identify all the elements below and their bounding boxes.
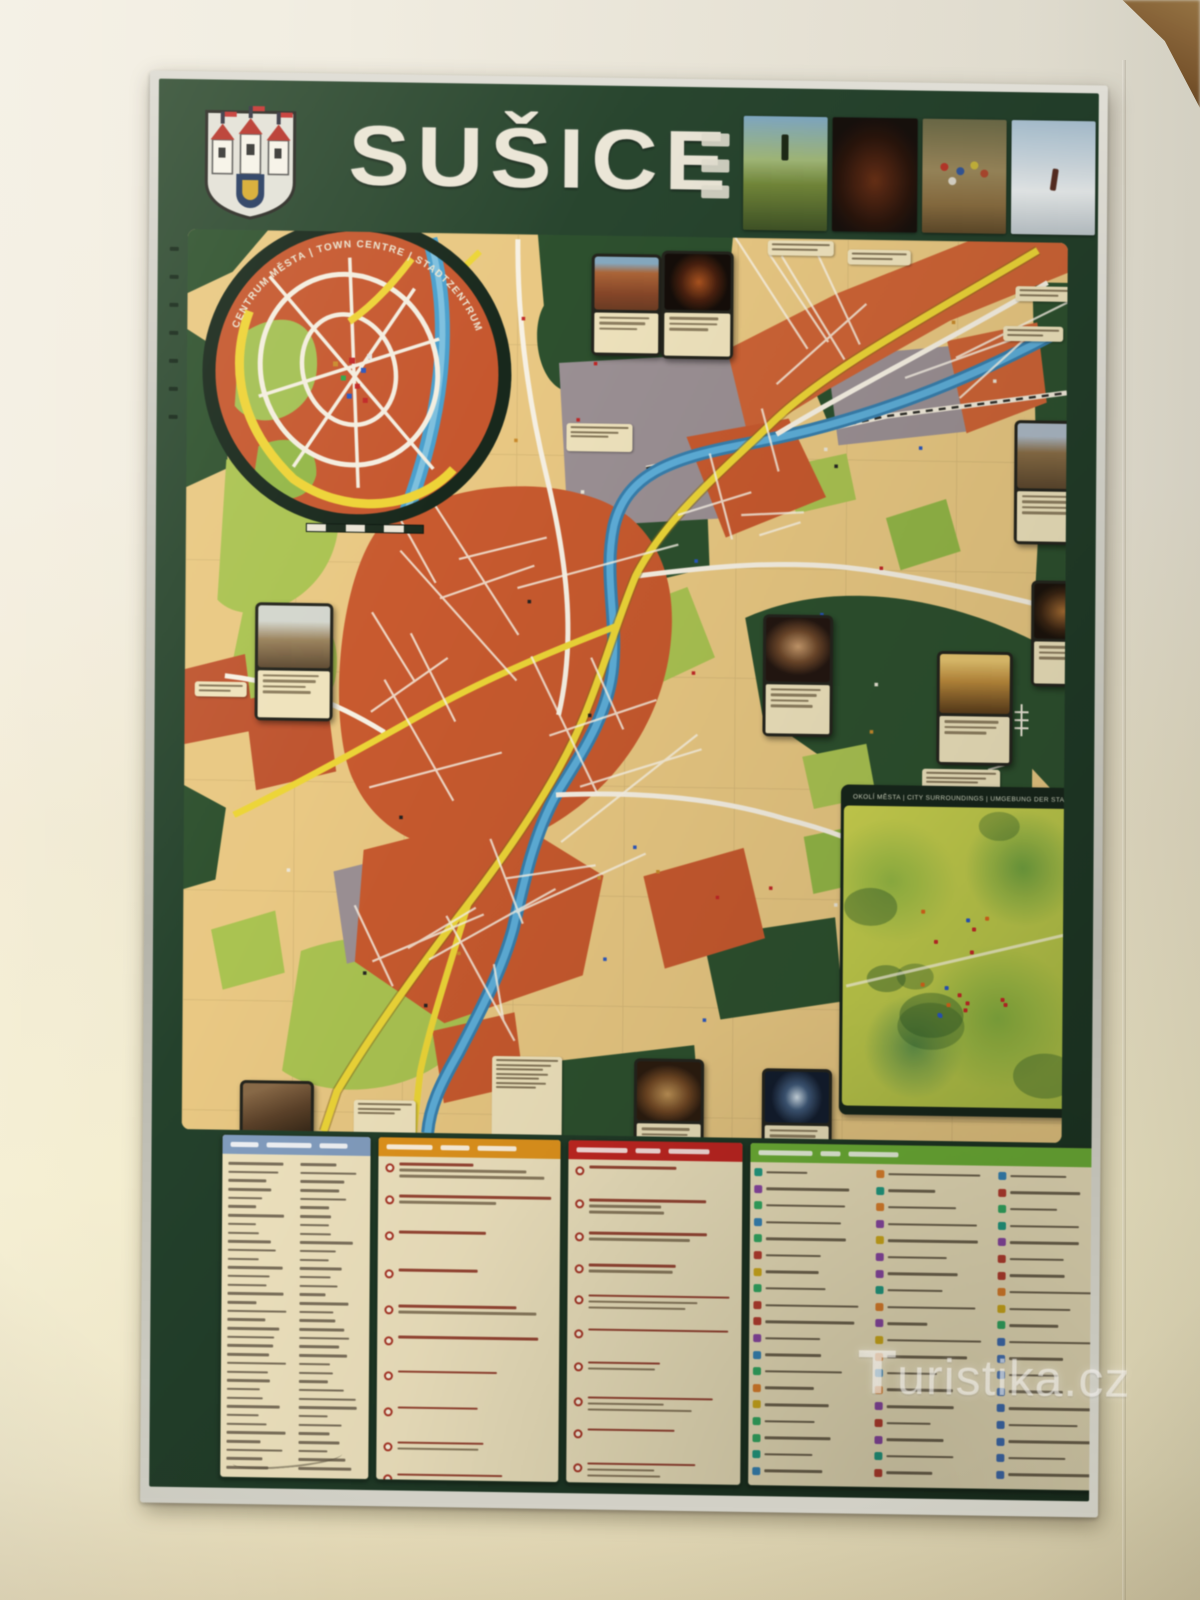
- poster-inner: SUŠICE: [149, 79, 1099, 1502]
- poi-dot: [921, 983, 925, 987]
- map-caption: [566, 423, 632, 452]
- legend-panel-services-list-green: [747, 1142, 1099, 1492]
- legend-row: [753, 1317, 865, 1327]
- legend-panel-body: [376, 1156, 561, 1483]
- legend-row: [998, 1205, 1099, 1215]
- photo-callout-aerial-town: [591, 253, 662, 356]
- legend-row: [875, 1319, 987, 1329]
- city-map: CENTRUM MĚSTA | TOWN CENTRE | STADTZENTR…: [182, 229, 1068, 1143]
- legend-row: [997, 1321, 1099, 1331]
- surroundings-inset: OKOLÍ MĚSTA | CITY SURROUNDINGS | UMGEBU…: [839, 784, 1068, 1118]
- legend-row: [998, 1222, 1099, 1232]
- legend-row: [385, 1162, 553, 1183]
- legend-row: [754, 1234, 866, 1244]
- watermark: Turistika.cz: [858, 1336, 1131, 1412]
- legend-row: [574, 1428, 734, 1441]
- legend-row: [753, 1334, 865, 1344]
- map-caption: [768, 240, 834, 256]
- terrain-blob: [844, 888, 897, 926]
- legend-panels: [179, 1133, 1091, 1497]
- legend-row: [752, 1434, 864, 1444]
- legend-row: [383, 1441, 551, 1456]
- legend-row: [876, 1220, 988, 1230]
- legend-row: [998, 1238, 1099, 1248]
- surroundings-inset-label: OKOLÍ MĚSTA | CITY SURROUNDINGS | UMGEBU…: [853, 793, 1068, 803]
- poi-dot: [944, 986, 948, 990]
- legend-row: [573, 1462, 733, 1483]
- map-caption: [848, 249, 911, 265]
- map-caption: [1003, 326, 1063, 342]
- photo-callout-golden-panorama: [936, 651, 1013, 766]
- poi-dot: [934, 940, 938, 944]
- legend-row: [574, 1328, 734, 1341]
- legend-panel-street-index: [219, 1134, 371, 1480]
- legend-row: [575, 1231, 735, 1246]
- legend-row: [385, 1230, 553, 1243]
- legend-row: [752, 1450, 864, 1460]
- poi-dot: [937, 1013, 941, 1017]
- map-caption: [195, 681, 247, 697]
- map-caption: [354, 1100, 416, 1137]
- legend-row: [876, 1286, 988, 1296]
- photo-callout-chapel: [255, 602, 334, 721]
- photo-callout-night-church: [661, 251, 734, 360]
- poi-dot: [963, 1008, 967, 1012]
- terrain-blob: [897, 1002, 965, 1050]
- city-coat-of-arms-icon: [200, 105, 301, 223]
- surroundings-inset-map: [842, 805, 1068, 1109]
- legend-row: [384, 1336, 552, 1349]
- legend-row: [754, 1185, 866, 1195]
- legend-row: [998, 1272, 1099, 1282]
- terrain-blob: [1013, 1054, 1068, 1100]
- legend-row: [753, 1367, 865, 1377]
- header-photo-strip: [743, 116, 1096, 236]
- legend-row: [996, 1471, 1099, 1481]
- legend-row: [754, 1268, 866, 1278]
- town-centre-inset: CENTRUM MĚSTA | TOWN CENTRE | STADTZENTR…: [198, 229, 516, 536]
- watermark-logo-t: T: [858, 1337, 898, 1408]
- legend-row: [385, 1195, 553, 1210]
- legend-row: [753, 1417, 865, 1427]
- inset-road: [846, 930, 1068, 987]
- legend-row: [876, 1270, 988, 1280]
- legend-row: [997, 1288, 1098, 1298]
- legend-row: [998, 1172, 1099, 1182]
- legend-row: [574, 1294, 734, 1315]
- legend-row: [996, 1454, 1099, 1464]
- legend-row: [383, 1473, 551, 1483]
- border-grid-marks: [168, 247, 178, 443]
- legend-row: [384, 1305, 552, 1320]
- legend-row: [754, 1218, 866, 1228]
- legend-panel-sights-list-orange: [375, 1136, 561, 1483]
- poi-dot: [946, 1003, 950, 1007]
- poi-dot: [966, 1002, 970, 1006]
- photo-callout-hill-view: [1014, 420, 1068, 545]
- legend-row: [876, 1253, 988, 1263]
- legend-row: [384, 1370, 552, 1383]
- night-illuminated-church-photo: [832, 117, 917, 232]
- legend-row: [876, 1187, 988, 1197]
- legend-row: [875, 1303, 987, 1313]
- legend-row: [754, 1201, 866, 1211]
- legend-row: [753, 1351, 865, 1361]
- poi-dot: [958, 993, 962, 997]
- poi-dot: [1003, 1003, 1007, 1007]
- legend-row: [754, 1284, 866, 1294]
- legend-row: [998, 1255, 1099, 1265]
- legend-row: [753, 1384, 865, 1394]
- map-caption: [492, 1056, 563, 1137]
- poi-dot: [966, 919, 970, 923]
- legend-row: [574, 1361, 734, 1376]
- legend-panel-body: [220, 1154, 370, 1479]
- photo-callout-mountain-sunset: [762, 614, 833, 737]
- legend-panel-body: [565, 1159, 742, 1486]
- legend-row: [997, 1305, 1099, 1315]
- legend-row: [875, 1419, 987, 1429]
- photo-callout-night-tower: [761, 1068, 832, 1143]
- legend-row: [753, 1301, 865, 1311]
- poi-dot: [985, 917, 989, 921]
- cross-country-skiing-photo: [1011, 120, 1096, 235]
- memorial-on-meadow-photo: [743, 116, 828, 231]
- legend-row: [876, 1203, 988, 1213]
- legend-row: [754, 1251, 866, 1261]
- legend-row: [384, 1406, 552, 1419]
- poster-title: SUŠICE: [348, 108, 733, 211]
- legend-row: [385, 1268, 553, 1281]
- legend-row: [575, 1264, 735, 1279]
- legend-row: [754, 1168, 866, 1178]
- legend-row: [874, 1436, 986, 1446]
- photo-callout-landmark: [1031, 580, 1068, 687]
- map-caption: [1015, 286, 1067, 302]
- legend-row: [575, 1198, 735, 1219]
- poi-dot: [921, 909, 925, 913]
- photo-callout-interior: [633, 1058, 704, 1143]
- legend-row: [997, 1421, 1099, 1431]
- photo-scene: SUŠICE: [0, 0, 1200, 1600]
- legend-row: [874, 1469, 986, 1479]
- poi-dot: [972, 927, 976, 931]
- scale-bar: [306, 523, 424, 534]
- legend-row: [753, 1400, 865, 1410]
- legend-row: [575, 1165, 735, 1178]
- legend-row: [752, 1467, 864, 1477]
- legend-row: [574, 1396, 734, 1417]
- legend-row: [998, 1189, 1099, 1199]
- legend-panel-body: [748, 1162, 1099, 1491]
- legend-row: [876, 1170, 988, 1180]
- terrain-blob: [979, 812, 1020, 841]
- decorative-stripes: [701, 133, 732, 211]
- legend-row: [876, 1236, 988, 1246]
- legend-row: [996, 1437, 1098, 1447]
- poi-dot: [1001, 998, 1005, 1002]
- cyclists-group-photo: [921, 119, 1006, 234]
- susice-map-poster: SUŠICE: [140, 70, 1108, 1517]
- legend-panel-header: [222, 1135, 370, 1156]
- legend-panel-sights-list-red: [565, 1139, 743, 1486]
- legend-row: [874, 1452, 986, 1462]
